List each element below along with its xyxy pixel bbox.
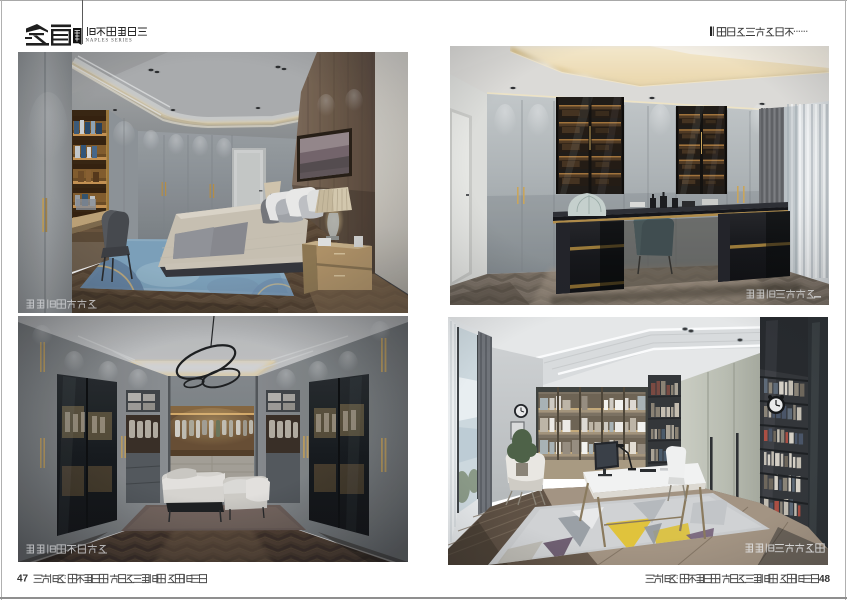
svg-text:47: 47 [17, 574, 29, 585]
svg-text:NAPLES SERIES: NAPLES SERIES [86, 39, 133, 44]
svg-text:48: 48 [819, 574, 831, 585]
